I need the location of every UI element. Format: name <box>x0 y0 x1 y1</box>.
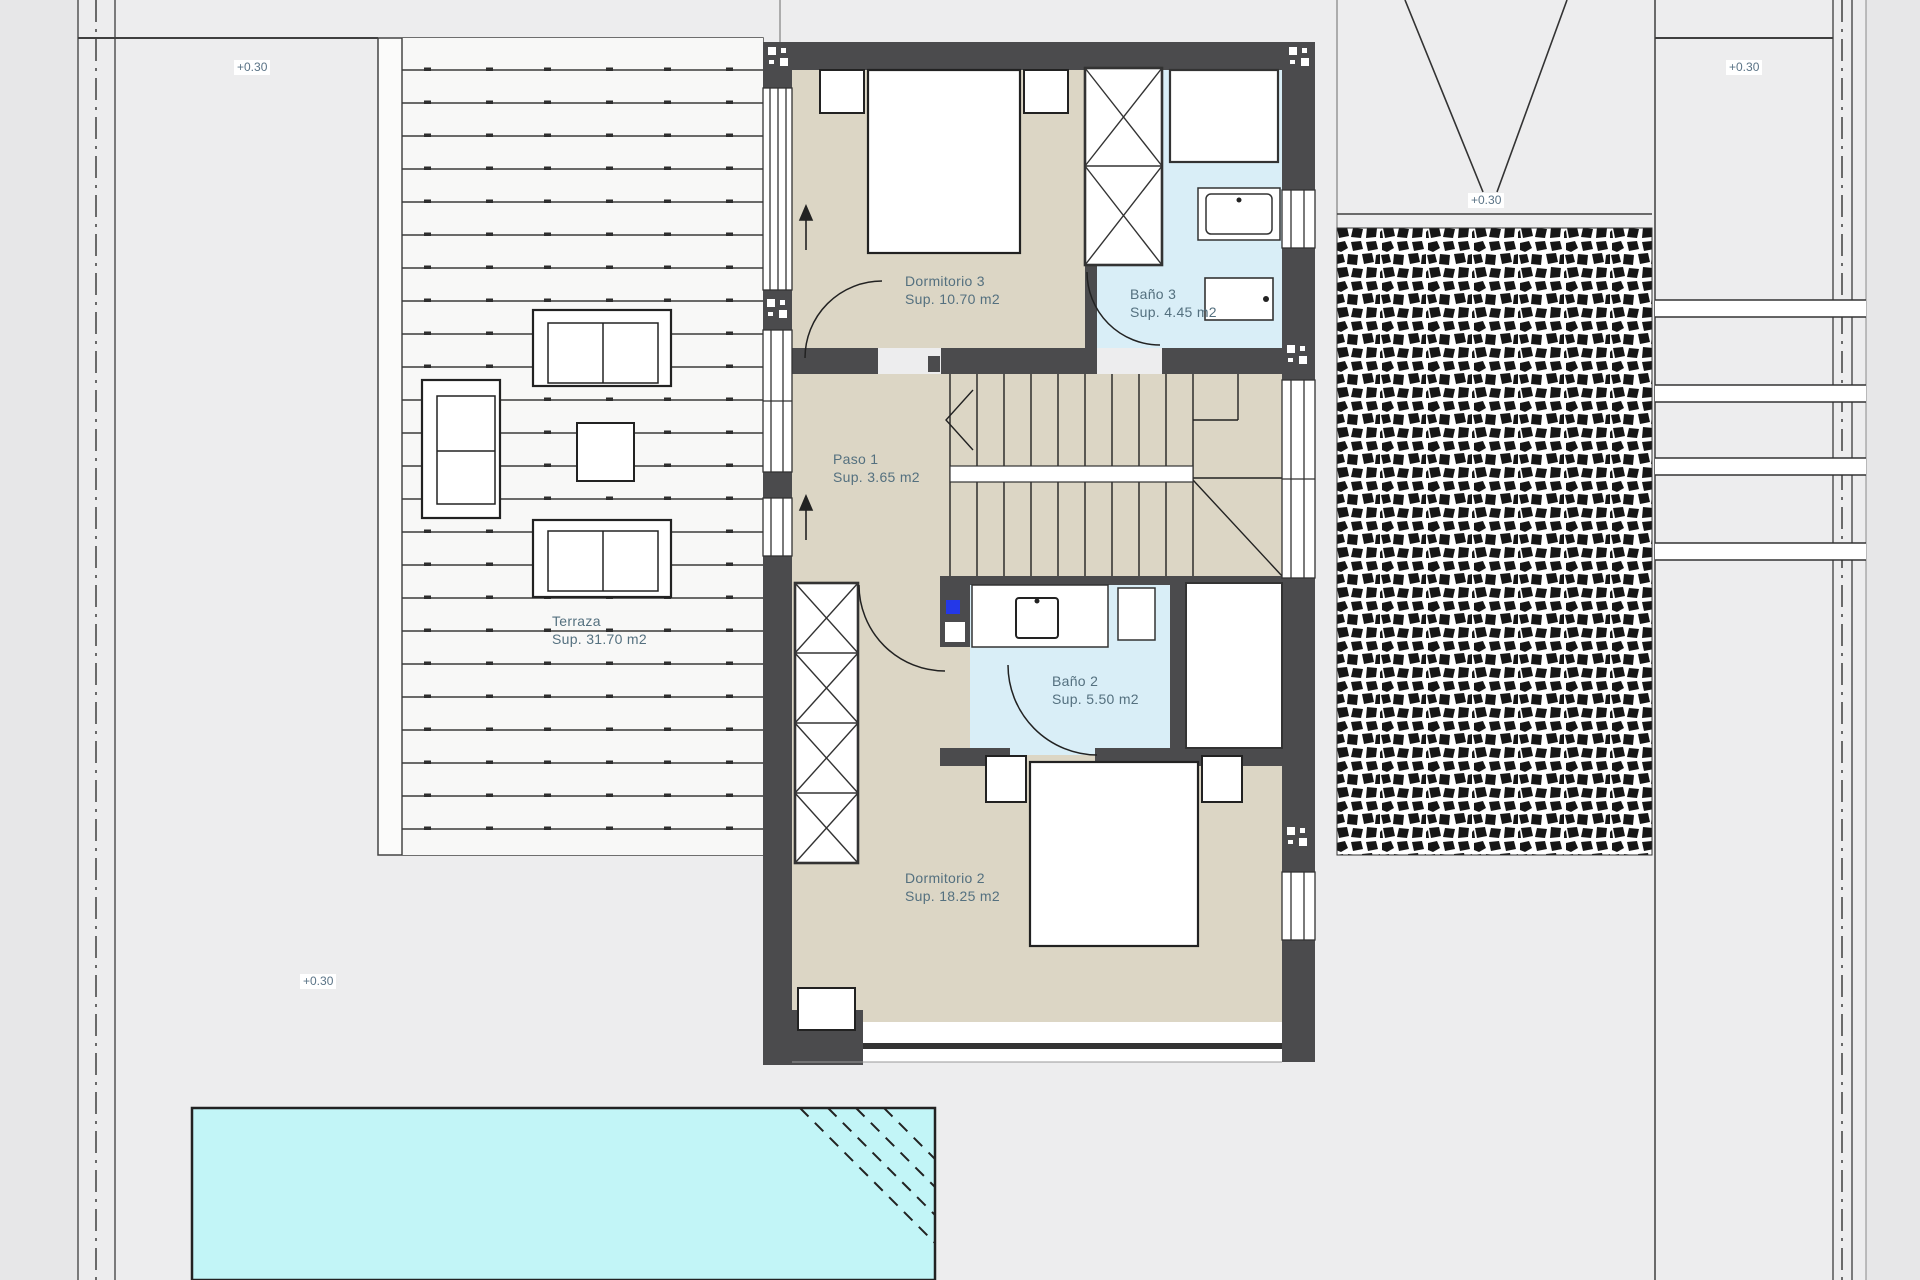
stair-handrail <box>950 466 1193 482</box>
room-area: Sup. 18.25 m2 <box>905 887 1000 905</box>
nightstand <box>820 70 864 113</box>
room-area: Sup. 5.50 m2 <box>1052 690 1139 708</box>
room-label-bano-3: Baño 3 Sup. 4.45 m2 <box>1130 285 1217 322</box>
elevation-marker: +0.30 <box>234 60 270 75</box>
room-name: Baño 3 <box>1130 285 1217 303</box>
pool <box>192 1108 935 1280</box>
room-label-terraza: Terraza Sup. 31.70 m2 <box>552 612 647 649</box>
elevation-marker: +0.30 <box>1468 193 1504 208</box>
room-area: Sup. 10.70 m2 <box>905 290 1000 308</box>
bed-dormitorio-3 <box>868 70 1020 253</box>
floor-plan-drawing <box>0 0 1920 1280</box>
toilet-bano-2 <box>1118 588 1155 640</box>
ramp-lines <box>1405 0 1567 192</box>
nightstand <box>1024 70 1068 113</box>
shower-bano-3 <box>1170 70 1278 162</box>
room-name: Baño 2 <box>1052 672 1139 690</box>
room-area: Sup. 4.45 m2 <box>1130 303 1217 321</box>
property-boundary-left <box>78 0 115 1280</box>
floor-paso-1 <box>792 374 955 600</box>
window-dormitorio-2 <box>1282 872 1315 940</box>
stone-paving <box>1337 228 1652 855</box>
room-name: Dormitorio 2 <box>905 869 1000 887</box>
window-paso-2 <box>763 498 792 556</box>
room-label-paso-1: Paso 1 Sup. 3.65 m2 <box>833 450 920 487</box>
shower-bano-2 <box>1186 583 1282 748</box>
terrace-table <box>577 423 634 481</box>
room-label-bano-2: Baño 2 Sup. 5.50 m2 <box>1052 672 1139 709</box>
right-wall-openings <box>1655 300 1866 560</box>
nightstand <box>1202 756 1242 802</box>
sink-bano-2 <box>1016 598 1058 638</box>
property-boundary-right <box>1833 0 1866 1280</box>
window-paso-1 <box>763 330 792 472</box>
nightstand <box>986 756 1026 802</box>
window-bano-3 <box>1282 190 1315 248</box>
room-label-dormitorio-2: Dormitorio 2 Sup. 18.25 m2 <box>905 869 1000 906</box>
room-label-dormitorio-3: Dormitorio 3 Sup. 10.70 m2 <box>905 272 1000 309</box>
wardrobe-dormitorio-3 <box>1085 68 1162 265</box>
wardrobe-dormitorio-2 <box>795 583 858 863</box>
room-area: Sup. 3.65 m2 <box>833 468 920 486</box>
dresser <box>798 988 855 1030</box>
window-stairs <box>1282 380 1315 578</box>
room-name: Dormitorio 3 <box>905 272 1000 290</box>
room-name: Paso 1 <box>833 450 920 468</box>
utility-blue-box <box>946 600 960 614</box>
elevation-marker: +0.30 <box>300 974 336 989</box>
room-area: Sup. 31.70 m2 <box>552 630 647 648</box>
bed-dormitorio-2 <box>1030 762 1198 946</box>
glass-door-terrace <box>763 88 792 290</box>
elevation-marker: +0.30 <box>1726 60 1762 75</box>
floor-plan: Dormitorio 3 Sup. 10.70 m2 Baño 3 Sup. 4… <box>0 0 1920 1280</box>
room-name: Terraza <box>552 612 647 630</box>
